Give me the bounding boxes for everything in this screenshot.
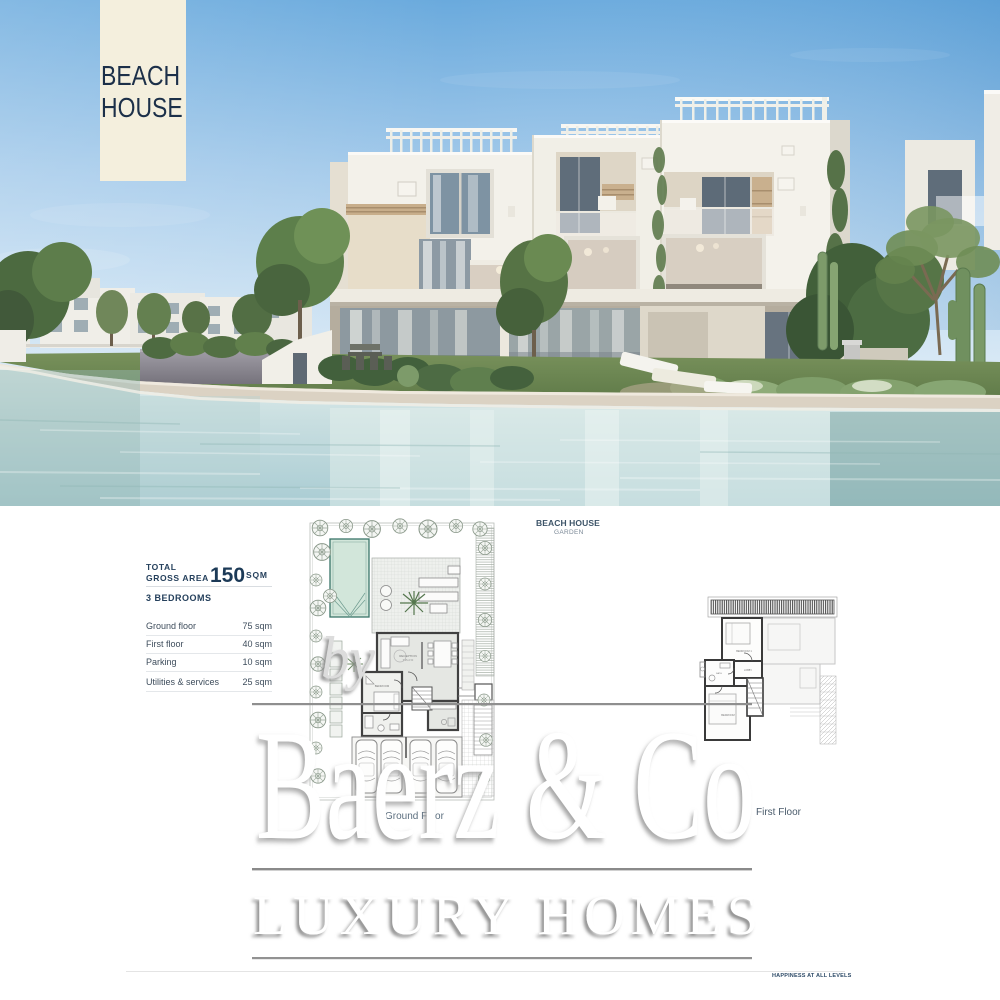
svg-text:BEDROOM: BEDROOM [375, 684, 390, 688]
svg-text:RECEPTION: RECEPTION [399, 654, 417, 658]
svg-text:5.95x4.50: 5.95x4.50 [403, 659, 414, 662]
svg-text:BEDROOM: BEDROOM [721, 713, 734, 717]
svg-text:BEDROOM 1: BEDROOM 1 [736, 649, 752, 653]
svg-text:BATH: BATH [716, 672, 722, 675]
svg-text:LUXURY HOMES: LUXURY HOMES [253, 885, 758, 947]
svg-text:LOBBY: LOBBY [744, 669, 752, 672]
